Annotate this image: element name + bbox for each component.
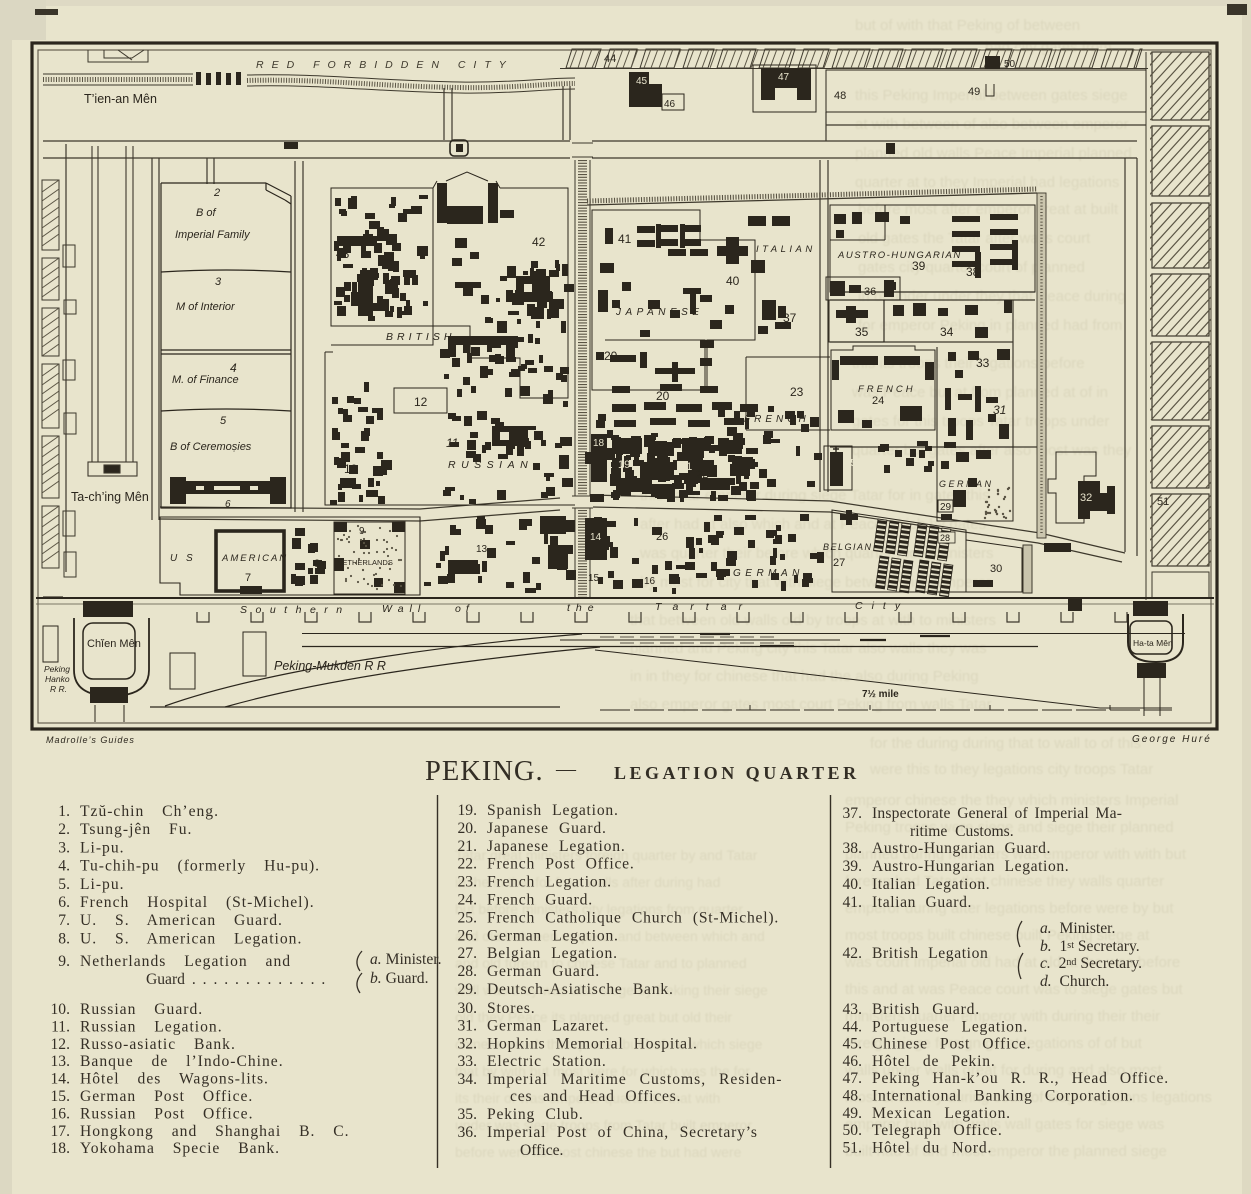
svg-text:French Legation.: French Legation.: [487, 874, 612, 891]
svg-text:planned old walls Peace Imperi: planned old walls Peace Imperial planned: [855, 145, 1132, 162]
svg-text:19: 19: [618, 459, 630, 471]
svg-text:Russian Post Office.: Russian Post Office.: [80, 1105, 254, 1122]
svg-text:Peking-Mukden R R: Peking-Mukden R R: [274, 659, 386, 673]
svg-text:8: 8: [314, 558, 320, 570]
svg-text:46: 46: [664, 99, 676, 110]
svg-text:RED FORBIDDEN CITY: RED FORBIDDEN CITY: [256, 59, 514, 71]
svg-text:NETHERLANDS: NETHERLANDS: [337, 558, 393, 567]
svg-text:5: 5: [220, 415, 227, 427]
svg-text:Electric Station.: Electric Station.: [487, 1053, 607, 1070]
svg-text:42: 42: [532, 235, 546, 249]
svg-text:Peking: Peking: [44, 664, 70, 674]
svg-text:Chinese Post Office.: Chinese Post Office.: [872, 1036, 1031, 1053]
svg-text:32.: 32.: [458, 1035, 478, 1052]
svg-text:Tartar: Tartar: [655, 601, 754, 613]
svg-text:Tu-chih-pu (formerly Hu-pu).: Tu-chih-pu (formerly Hu-pu).: [80, 858, 320, 875]
svg-text:planned and Peking city this T: planned and Peking city this Tatar also …: [630, 640, 987, 657]
svg-text:27.: 27.: [458, 945, 478, 962]
svg-text:18.: 18.: [51, 1140, 71, 1157]
svg-text:Chĭen Mên: Chĭen Mên: [87, 638, 141, 650]
svg-text:21: 21: [680, 461, 692, 473]
svg-text:2: 2: [213, 187, 220, 199]
svg-text:28: 28: [940, 533, 950, 543]
svg-text:13: 13: [476, 544, 488, 555]
svg-text:13.: 13.: [51, 1053, 71, 1070]
svg-text:RUSSIAN: RUSSIAN: [448, 459, 533, 471]
svg-text:44.: 44.: [843, 1018, 863, 1035]
svg-text:Li-pu.: Li-pu.: [80, 839, 125, 856]
svg-text:Russo-asiatic Bank.: Russo-asiatic Bank.: [80, 1036, 236, 1053]
svg-text:the: the: [567, 602, 600, 614]
svg-text:24.: 24.: [458, 892, 478, 909]
svg-text:Madrolle’s Guides: Madrolle’s Guides: [46, 735, 135, 745]
svg-text:Imperial Family: Imperial Family: [175, 229, 251, 241]
svg-text:41.: 41.: [843, 894, 863, 911]
svg-text:British Legation: British Legation: [872, 945, 988, 962]
svg-text:17.: 17.: [51, 1123, 71, 1140]
svg-text:20.: 20.: [458, 820, 478, 837]
svg-text:ces and Head Offices.: ces and Head Offices.: [510, 1088, 681, 1105]
svg-text:15: 15: [588, 573, 600, 584]
svg-text:Russian Guard.: Russian Guard.: [80, 1001, 203, 1018]
svg-text:Peking Club.: Peking Club.: [487, 1106, 584, 1123]
svg-text:8.: 8.: [58, 930, 70, 947]
svg-text:32: 32: [1080, 492, 1092, 504]
svg-text:26.: 26.: [458, 927, 478, 944]
svg-text:31.: 31.: [458, 1018, 478, 1035]
svg-text:FRENCH: FRENCH: [858, 384, 916, 395]
svg-text:22.: 22.: [458, 856, 478, 873]
svg-text:45: 45: [636, 76, 648, 87]
svg-text:Hanko: Hanko: [45, 674, 70, 684]
svg-text:Telegraph Office.: Telegraph Office.: [872, 1122, 1003, 1139]
svg-text:—: —: [555, 758, 577, 780]
svg-text:23.: 23.: [458, 874, 478, 891]
svg-text:43.: 43.: [843, 1001, 863, 1018]
svg-text:T’ien-an Mên: T’ien-an Mên: [84, 92, 157, 106]
svg-text:Imperial Maritime Customs, Res: Imperial Maritime Customs, Residen-: [487, 1071, 782, 1088]
svg-text:for the during during that to: for the during during that to wall to of…: [870, 735, 1141, 752]
svg-text:47: 47: [778, 72, 790, 83]
svg-text:10: 10: [344, 462, 358, 476]
svg-text:German Guard.: German Guard.: [487, 963, 600, 980]
svg-text:30: 30: [990, 563, 1002, 575]
svg-text:JAPANESE: JAPANESE: [615, 307, 704, 318]
svg-text:Portuguese Legation.: Portuguese Legation.: [872, 1018, 1028, 1035]
svg-text:International Banking Corporat: International Banking Corporation.: [872, 1088, 1134, 1105]
svg-text:Hopkins Memorial Hospital.: Hopkins Memorial Hospital.: [487, 1035, 698, 1052]
svg-text:47.: 47.: [843, 1070, 863, 1087]
svg-text:20: 20: [604, 349, 618, 363]
svg-text:48: 48: [834, 90, 846, 102]
svg-text:25.: 25.: [458, 909, 478, 926]
svg-text:Tzŭ-chin Ch’eng.: Tzŭ-chin Ch’eng.: [80, 803, 219, 820]
svg-text:38: 38: [966, 265, 980, 279]
svg-text:30.: 30.: [458, 1000, 478, 1017]
svg-text:7: 7: [245, 572, 251, 584]
svg-text:42.: 42.: [843, 945, 863, 962]
svg-text:18: 18: [593, 438, 605, 449]
svg-text:Banque de l’Indo-Chine.: Banque de l’Indo-Chine.: [80, 1053, 284, 1070]
svg-text:R R.: R R.: [50, 684, 67, 694]
svg-text:48.: 48.: [843, 1088, 863, 1105]
svg-text:35: 35: [855, 325, 869, 339]
svg-text:BELGIAN: BELGIAN: [823, 542, 873, 552]
svg-text:14: 14: [590, 532, 602, 543]
svg-text:B of: B of: [196, 207, 217, 219]
svg-text:12.: 12.: [51, 1036, 71, 1053]
svg-text:M. of Finance: M. of Finance: [172, 374, 239, 386]
svg-text:26: 26: [656, 531, 668, 543]
svg-text:Ha-ta Mên: Ha-ta Mên: [1133, 638, 1173, 648]
svg-text:39.: 39.: [843, 858, 863, 875]
svg-text:10.: 10.: [51, 1001, 71, 1018]
svg-text:German Legation.: German Legation.: [487, 927, 619, 944]
svg-text:French Guard.: French Guard.: [487, 892, 593, 909]
svg-text:43: 43: [336, 247, 350, 261]
svg-text:George Huré: George Huré: [1132, 734, 1212, 745]
svg-text:Stores.: Stores.: [487, 1000, 535, 1017]
svg-text:49.: 49.: [843, 1105, 863, 1122]
svg-text:ritime Customs.: ritime Customs.: [910, 823, 1014, 840]
svg-text:Austro-Hungarian Legation.: Austro-Hungarian Legation.: [872, 858, 1069, 875]
svg-text:PEKING.: PEKING.: [425, 756, 544, 787]
svg-text:British Guard.: British Guard.: [872, 1001, 980, 1018]
svg-text:29.: 29.: [458, 981, 478, 998]
svg-text:Russian Legation.: Russian Legation.: [80, 1018, 223, 1035]
svg-text:City: City: [855, 600, 909, 612]
svg-text:U S: U S: [170, 553, 196, 564]
svg-text:Spanish Legation.: Spanish Legation.: [487, 802, 619, 819]
svg-text:11: 11: [446, 436, 458, 450]
svg-text:Li-pu.: Li-pu.: [80, 876, 125, 893]
svg-text:7.: 7.: [58, 912, 70, 929]
svg-text:11.: 11.: [51, 1018, 70, 1035]
svg-text:AUSTRO-HUNGARIAN: AUSTRO-HUNGARIAN: [837, 250, 962, 261]
svg-text:before most after emperor grea: before most after emperor great at built: [858, 201, 1119, 218]
svg-text:gates for this troops Tatar tr: gates for this troops Tatar troops under: [852, 413, 1109, 430]
svg-text:38.: 38.: [843, 840, 863, 857]
svg-text:Hôtel de Pekin.: Hôtel de Pekin.: [872, 1053, 996, 1070]
svg-text:40.: 40.: [843, 876, 863, 893]
svg-text:AMERICAN: AMERICAN: [221, 553, 288, 564]
svg-text:49: 49: [968, 86, 980, 98]
svg-text:33: 33: [976, 356, 990, 370]
svg-text:Netherlands Legation and: Netherlands Legation and: [80, 953, 291, 970]
svg-text:34.: 34.: [458, 1071, 478, 1088]
svg-text:6.: 6.: [58, 894, 70, 911]
svg-text:50.: 50.: [843, 1122, 863, 1139]
svg-text:M of Interior: M of Interior: [176, 301, 236, 313]
svg-text:FRENCH: FRENCH: [744, 414, 810, 425]
svg-text:French Post Office.: French Post Office.: [487, 856, 635, 873]
svg-text:36: 36: [864, 286, 876, 298]
svg-text:French Catholique Church (St-M: French Catholique Church (St-Michel).: [487, 909, 779, 926]
svg-text:in in they for chinese that ha: in in they for chinese that had the also…: [630, 668, 979, 685]
svg-text:Austro-Hungarian Guard.: Austro-Hungarian Guard.: [872, 840, 1051, 857]
svg-text:c. 2nd Secretary.: c. 2nd Secretary.: [1040, 955, 1142, 972]
svg-text:were this to they legations ci: were this to they legations city troops …: [869, 761, 1153, 778]
svg-text:16: 16: [644, 576, 656, 587]
svg-text:14.: 14.: [51, 1071, 71, 1088]
svg-text:Hôtel du Nord.: Hôtel du Nord.: [872, 1139, 992, 1156]
svg-text:44: 44: [604, 53, 616, 65]
svg-text:5.: 5.: [58, 876, 70, 893]
svg-text:39: 39: [912, 259, 926, 273]
svg-text:36.: 36.: [458, 1124, 478, 1141]
svg-text:for emperor Peking in planned: for emperor Peking in planned had from: [858, 317, 1122, 334]
svg-text:b. 1st Secretary.: b. 1st Secretary.: [1040, 938, 1140, 955]
svg-text:23: 23: [790, 385, 804, 399]
svg-text:but of with that Peking of bet: but of with that Peking of between: [855, 17, 1080, 34]
svg-text:a. Minister.: a. Minister.: [1040, 920, 1115, 937]
svg-text:41: 41: [618, 232, 632, 246]
svg-text:in of under under they that Pe: in of under under they that Peace during: [858, 288, 1126, 305]
svg-text:51.: 51.: [843, 1139, 863, 1156]
svg-text:GERMAN: GERMAN: [939, 479, 994, 489]
svg-text:Tsung-jên Fu.: Tsung-jên Fu.: [80, 821, 192, 838]
svg-text:37: 37: [783, 311, 797, 325]
svg-text:Hôtel des Wagons-lits.: Hôtel des Wagons-lits.: [80, 1071, 269, 1088]
svg-text:quarter but gates after also m: quarter but gates after also most was th…: [852, 442, 1132, 459]
svg-text:29: 29: [940, 502, 952, 513]
svg-text:3: 3: [215, 276, 222, 288]
svg-text:15.: 15.: [51, 1088, 71, 1105]
svg-text:19.: 19.: [458, 802, 478, 819]
svg-text:34: 34: [940, 325, 954, 339]
svg-text:U. S. American Guard.: U. S. American Guard.: [80, 912, 283, 929]
svg-text:of: of: [455, 603, 474, 615]
svg-text:16.: 16.: [51, 1105, 71, 1122]
svg-text:Wall: Wall: [382, 603, 426, 615]
svg-text:French Hospital (St-Michel).: French Hospital (St-Michel).: [80, 894, 315, 911]
svg-text:that between old walls old by: that between old walls old by troops at …: [630, 612, 996, 629]
svg-text:Hongkong and Shanghai B. C.: Hongkong and Shanghai B. C.: [80, 1123, 350, 1140]
svg-text:Guard . . . . . . . . . . . .: Guard . . . . . . . . . . . . .: [146, 971, 325, 988]
svg-text:12: 12: [414, 395, 428, 409]
svg-text:ITALIAN: ITALIAN: [756, 244, 816, 255]
svg-text:Inspectorate General of Imperi: Inspectorate General of Imperial Ma-: [872, 805, 1122, 822]
svg-text:21.: 21.: [458, 838, 478, 855]
svg-text:Imperial Post of China, Secret: Imperial Post of China, Secretary’s: [487, 1124, 758, 1141]
svg-text:a. Minister.: a. Minister.: [370, 951, 441, 968]
svg-text:24: 24: [872, 395, 884, 407]
svg-text:Japanese Legation.: Japanese Legation.: [487, 838, 626, 855]
svg-text:this and at was Peace court wa: this and at was Peace court was to siege…: [845, 981, 1184, 998]
svg-text:B of Ceremoṣies: B of Ceremoṣies: [170, 441, 252, 453]
svg-text:German Post Office.: German Post Office.: [80, 1088, 253, 1105]
svg-text:9.: 9.: [58, 953, 70, 970]
svg-text:1.: 1.: [58, 803, 70, 820]
svg-text:31: 31: [993, 403, 1006, 417]
svg-text:before were its most chinese t: before were its most chinese the but had…: [455, 1144, 742, 1160]
svg-text:Italian Guard.: Italian Guard.: [872, 894, 972, 911]
svg-text:Peking Han-k’ou R. R., Head Of: Peking Han-k’ou R. R., Head Office.: [872, 1070, 1169, 1087]
svg-text:45.: 45.: [843, 1036, 863, 1053]
svg-text:51: 51: [1157, 496, 1169, 508]
svg-text:50: 50: [1004, 59, 1016, 70]
svg-text:3.: 3.: [58, 839, 70, 856]
svg-text:Ta-ch’ing Mên: Ta-ch’ing Mên: [71, 490, 149, 504]
svg-text:4: 4: [230, 361, 237, 375]
svg-text:27: 27: [833, 557, 845, 569]
svg-text:6: 6: [225, 499, 231, 510]
svg-text:25: 25: [845, 458, 857, 469]
svg-text:46.: 46.: [843, 1053, 863, 1070]
svg-text:BRITISH: BRITISH: [386, 331, 455, 343]
svg-text:20: 20: [656, 389, 670, 403]
svg-text:4.: 4.: [58, 858, 70, 875]
svg-text:Deutsch-Asiatische Bank.: Deutsch-Asiatische Bank.: [487, 981, 674, 998]
svg-text:b. Guard.: b. Guard.: [370, 970, 428, 987]
svg-text:Southern: Southern: [240, 604, 351, 616]
svg-text:Japanese Guard.: Japanese Guard.: [487, 820, 607, 837]
svg-text:U. S. American Legation.: U. S. American Legation.: [80, 930, 302, 947]
svg-text:GERMAN: GERMAN: [733, 568, 804, 579]
svg-text:37.: 37.: [843, 805, 863, 822]
svg-text:28.: 28.: [458, 963, 478, 980]
svg-text:Italian Legation.: Italian Legation.: [872, 876, 990, 893]
svg-text:Yokohama Specie Bank.: Yokohama Specie Bank.: [80, 1140, 280, 1157]
svg-text:2.: 2.: [58, 821, 70, 838]
svg-text:Office.: Office.: [520, 1142, 563, 1159]
svg-text:Belgian Legation.: Belgian Legation.: [487, 945, 618, 962]
svg-text:35.: 35.: [458, 1106, 478, 1123]
svg-text:22: 22: [696, 469, 708, 481]
svg-text:7½ mile: 7½ mile: [862, 689, 899, 700]
svg-text:40: 40: [726, 274, 740, 288]
svg-text:German Lazaret.: German Lazaret.: [487, 1018, 609, 1035]
svg-text:d. Church.: d. Church.: [1040, 973, 1109, 990]
svg-text:Mexican Legation.: Mexican Legation.: [872, 1105, 1011, 1122]
svg-text:LEGATION QUARTER: LEGATION QUARTER: [614, 763, 860, 783]
svg-text:33.: 33.: [458, 1053, 478, 1070]
